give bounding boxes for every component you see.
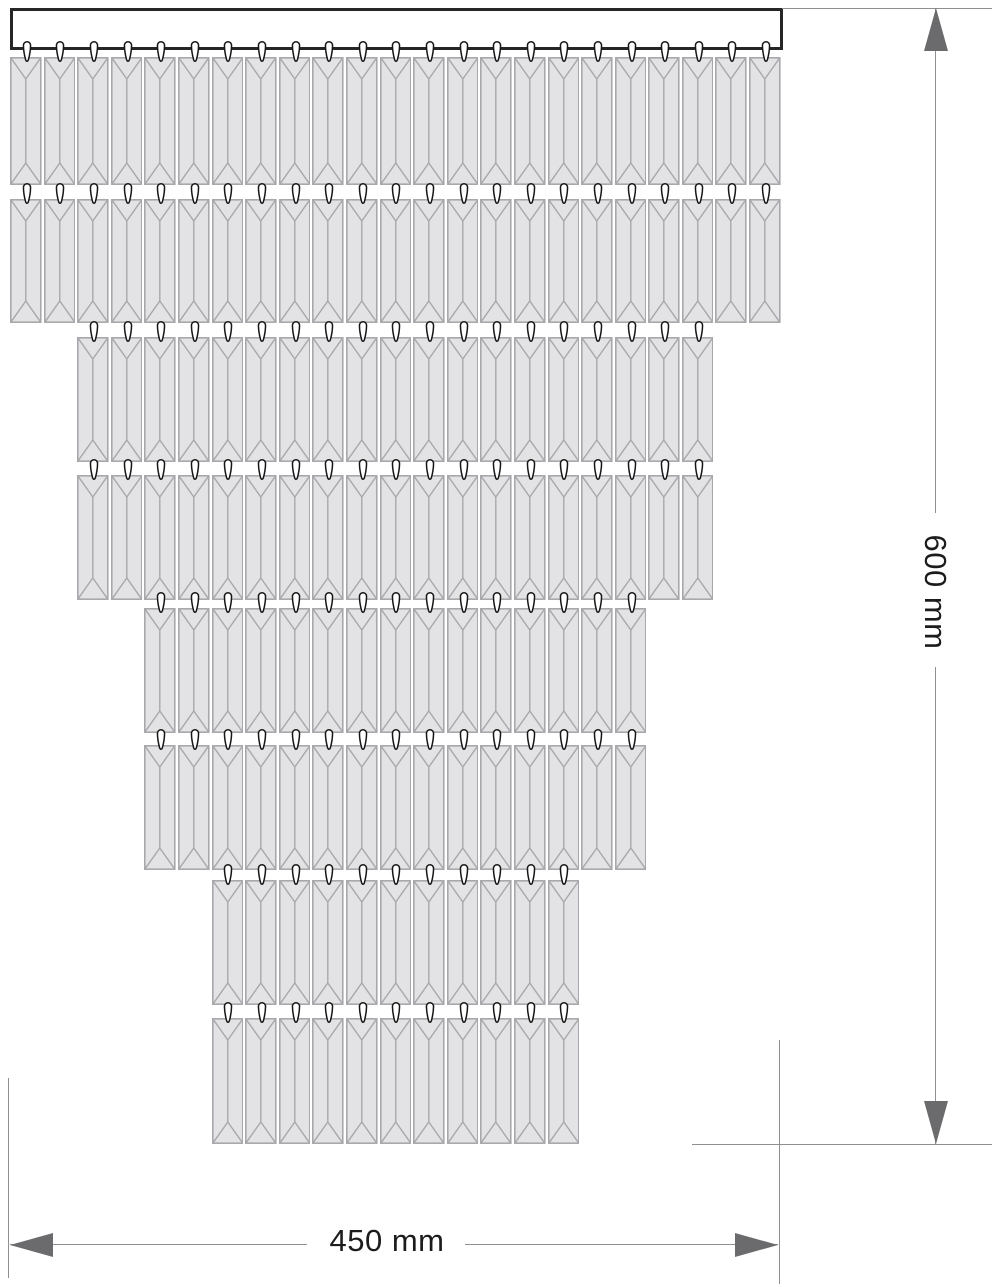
crystal-prism <box>514 475 546 600</box>
crystal-prism <box>581 199 613 323</box>
hook-pin <box>425 459 435 480</box>
crystal-prism <box>447 608 479 733</box>
crystal-prism <box>514 880 546 1005</box>
hook-pin <box>358 183 368 204</box>
crystal-prism <box>581 745 613 870</box>
hook-pin <box>89 459 99 480</box>
crystal-prism <box>212 337 244 462</box>
crystal-prism <box>380 337 412 462</box>
crystal-prism <box>682 199 714 323</box>
technical-drawing-canvas: 600 mm 450 mm <box>0 0 992 1287</box>
crystal-prism <box>279 880 311 1005</box>
crystal-prism <box>111 337 143 462</box>
hook-pin <box>324 41 334 62</box>
hook-pin <box>223 729 233 750</box>
crystal-prism <box>749 199 781 323</box>
hook-pin <box>593 41 603 62</box>
crystal-prism <box>346 199 378 323</box>
hook-pin <box>694 41 704 62</box>
hook-pin <box>459 864 469 885</box>
hook-pin <box>425 592 435 613</box>
hook-pin <box>223 183 233 204</box>
hook-pin <box>291 729 301 750</box>
hook-pin <box>156 729 166 750</box>
crystal-prism <box>346 608 378 733</box>
hook-pin <box>257 41 267 62</box>
crystal-prism <box>682 475 714 600</box>
extension-line-top <box>782 8 992 9</box>
hook-pin <box>291 864 301 885</box>
hook-pin <box>425 729 435 750</box>
hook-pin <box>324 1002 334 1023</box>
hook-pin <box>190 592 200 613</box>
width-dimension-line-right <box>465 1244 778 1245</box>
hook-pin <box>492 592 502 613</box>
crystal-row-row-3 <box>77 337 713 462</box>
crystal-prism <box>212 57 244 185</box>
hook-pin <box>627 321 637 342</box>
crystal-prism <box>346 337 378 462</box>
hook-pin <box>223 459 233 480</box>
hook-pin <box>459 1002 469 1023</box>
hook-pin <box>358 41 368 62</box>
crystal-prism <box>212 745 244 870</box>
crystal-prism <box>615 337 647 462</box>
crystal-prism <box>212 880 244 1005</box>
hook-pin <box>358 592 368 613</box>
hook-pin <box>492 864 502 885</box>
hook-pin <box>123 183 133 204</box>
hook-pin <box>727 183 737 204</box>
crystal-prism <box>548 745 580 870</box>
hook-pin <box>358 1002 368 1023</box>
crystal-prism <box>447 1018 479 1144</box>
hook-pin <box>223 41 233 62</box>
hook-pin <box>358 459 368 480</box>
hook-pin <box>391 321 401 342</box>
hook-pin <box>190 321 200 342</box>
crystal-prism <box>245 745 277 870</box>
crystal-prism <box>548 337 580 462</box>
hook-pin <box>492 183 502 204</box>
hook-pin <box>257 864 267 885</box>
hook-pin <box>694 459 704 480</box>
hook-pin <box>55 41 65 62</box>
crystal-prism <box>648 199 680 323</box>
crystal-prism <box>480 1018 512 1144</box>
crystal-prism <box>77 199 109 323</box>
crystal-prism <box>380 57 412 185</box>
hook-pin <box>324 592 334 613</box>
crystal-prism <box>178 337 210 462</box>
hook-pin <box>291 592 301 613</box>
crystal-prism <box>279 337 311 462</box>
crystal-row-row-4 <box>77 475 713 600</box>
crystal-prism <box>312 608 344 733</box>
crystal-prism <box>346 745 378 870</box>
hook-pin <box>425 321 435 342</box>
crystal-prism <box>413 1018 445 1144</box>
crystal-prism <box>581 57 613 185</box>
hook-pin <box>459 592 469 613</box>
crystal-prism <box>178 199 210 323</box>
crystal-prism <box>581 475 613 600</box>
hook-pin <box>593 729 603 750</box>
hook-pin <box>559 1002 569 1023</box>
crystal-prism <box>178 608 210 733</box>
crystal-prism <box>514 745 546 870</box>
crystal-prism <box>648 337 680 462</box>
extension-line-left <box>8 1078 9 1278</box>
crystal-prism <box>447 880 479 1005</box>
hook-pin <box>358 321 368 342</box>
hook-pin <box>358 864 368 885</box>
crystal-prism <box>245 475 277 600</box>
crystal-prism <box>380 880 412 1005</box>
hook-pin <box>660 41 670 62</box>
crystal-prism <box>312 745 344 870</box>
hook-pin <box>559 321 569 342</box>
hook-pin <box>22 41 32 62</box>
hook-pin <box>156 183 166 204</box>
hook-pin <box>761 41 771 62</box>
hook-pin <box>526 183 536 204</box>
hook-pin <box>358 729 368 750</box>
hook-pin <box>156 459 166 480</box>
crystal-prism <box>514 337 546 462</box>
hook-pin <box>89 321 99 342</box>
crystal-prism <box>514 608 546 733</box>
crystal-prism <box>279 1018 311 1144</box>
hook-pin <box>593 592 603 613</box>
crystal-prism <box>178 57 210 185</box>
crystal-prism <box>10 199 42 323</box>
hook-pin <box>559 183 569 204</box>
hook-pin <box>627 729 637 750</box>
crystal-prism <box>312 475 344 600</box>
crystal-prism <box>380 475 412 600</box>
crystal-prism <box>312 199 344 323</box>
hook-pin <box>391 729 401 750</box>
crystal-prism <box>413 337 445 462</box>
hook-pin <box>190 459 200 480</box>
crystal-prism <box>312 57 344 185</box>
hook-pin <box>223 864 233 885</box>
hook-pin <box>324 729 334 750</box>
crystal-prism <box>312 1018 344 1144</box>
hook-pin <box>291 321 301 342</box>
crystal-prism <box>245 880 277 1005</box>
crystal-prism <box>77 57 109 185</box>
hook-pin <box>492 1002 502 1023</box>
hook-pin <box>156 41 166 62</box>
hook-pin <box>223 1002 233 1023</box>
crystal-prism <box>447 745 479 870</box>
crystal-prism <box>715 199 747 323</box>
crystal-prism <box>212 1018 244 1144</box>
crystal-prism <box>279 57 311 185</box>
arrowhead-down <box>924 1101 948 1144</box>
crystal-prism <box>212 475 244 600</box>
hook-pin <box>526 1002 536 1023</box>
crystal-prism <box>615 608 647 733</box>
crystal-prism <box>144 199 176 323</box>
width-dimension-label: 450 mm <box>330 1223 445 1259</box>
extension-line-bottom <box>692 1144 992 1145</box>
crystal-row-row-8 <box>212 1018 580 1144</box>
crystal-row-row-5 <box>144 608 646 733</box>
hook-pin <box>190 41 200 62</box>
crystal-prism <box>144 745 176 870</box>
crystal-prism <box>10 57 42 185</box>
crystal-prism <box>212 608 244 733</box>
crystal-prism <box>480 57 512 185</box>
height-dimension-line-lower <box>935 667 936 1144</box>
crystal-prism <box>581 608 613 733</box>
crystal-prism <box>178 745 210 870</box>
hook-pin <box>391 41 401 62</box>
crystal-prism <box>346 880 378 1005</box>
crystal-prism <box>279 745 311 870</box>
hook-pin <box>526 459 536 480</box>
hook-pin <box>425 864 435 885</box>
hook-pin <box>694 321 704 342</box>
hook-pin <box>89 41 99 62</box>
crystal-prism <box>447 199 479 323</box>
crystal-prism <box>648 57 680 185</box>
crystal-prism <box>77 337 109 462</box>
crystal-prism <box>648 475 680 600</box>
height-dimension-label: 600 mm <box>917 535 953 650</box>
hook-pin <box>593 459 603 480</box>
crystal-prism <box>548 1018 580 1144</box>
crystal-prism <box>514 199 546 323</box>
hook-pin <box>559 864 569 885</box>
crystal-prism <box>144 57 176 185</box>
crystal-prism <box>380 745 412 870</box>
hook-pin <box>526 729 536 750</box>
crystal-prism <box>514 57 546 185</box>
hook-pin <box>627 41 637 62</box>
hook-pin <box>257 459 267 480</box>
hook-pin <box>425 41 435 62</box>
hook-pin <box>660 183 670 204</box>
hook-pin <box>123 321 133 342</box>
hook-pin <box>324 459 334 480</box>
crystal-prism <box>380 199 412 323</box>
crystal-prism <box>279 475 311 600</box>
hook-pin <box>459 321 469 342</box>
crystal-prism <box>548 199 580 323</box>
crystal-prism <box>548 475 580 600</box>
hook-pin <box>391 459 401 480</box>
hook-pin <box>559 41 569 62</box>
hook-pin <box>156 321 166 342</box>
crystal-prism <box>514 1018 546 1144</box>
arrowhead-up <box>924 8 948 51</box>
hook-pin <box>526 321 536 342</box>
crystal-prism <box>245 608 277 733</box>
hook-pin <box>291 459 301 480</box>
height-dimension-line-upper <box>935 8 936 513</box>
crystal-prism <box>111 57 143 185</box>
hook-pin <box>55 183 65 204</box>
crystal-prism <box>480 745 512 870</box>
crystal-prism <box>245 337 277 462</box>
hook-pin <box>391 1002 401 1023</box>
crystal-prism <box>212 199 244 323</box>
crystal-prism <box>111 475 143 600</box>
hook-pin <box>257 321 267 342</box>
crystal-prism <box>413 608 445 733</box>
hook-pin <box>459 41 469 62</box>
hook-pin <box>593 183 603 204</box>
hook-pin <box>190 183 200 204</box>
hook-pin <box>559 592 569 613</box>
hook-pin <box>425 183 435 204</box>
crystal-prism <box>346 57 378 185</box>
crystal-prism <box>413 880 445 1005</box>
crystal-prism <box>480 337 512 462</box>
crystal-prism <box>144 337 176 462</box>
hook-pin <box>324 183 334 204</box>
crystal-prism <box>480 475 512 600</box>
hook-pin <box>257 1002 267 1023</box>
crystal-prism <box>44 57 76 185</box>
hook-pin <box>291 41 301 62</box>
crystal-prism <box>144 475 176 600</box>
crystal-prism <box>413 57 445 185</box>
width-dimension-line-left <box>10 1244 307 1245</box>
hook-pin <box>627 592 637 613</box>
hook-pin <box>223 592 233 613</box>
crystal-prism <box>44 199 76 323</box>
hook-pin <box>156 592 166 613</box>
crystal-prism <box>144 608 176 733</box>
crystal-row-row-2 <box>10 199 781 323</box>
crystal-prism <box>615 199 647 323</box>
crystal-prism <box>615 475 647 600</box>
hook-pin <box>425 1002 435 1023</box>
hook-pin <box>190 729 200 750</box>
crystal-prism <box>749 57 781 185</box>
hook-pin <box>391 592 401 613</box>
crystal-prism <box>312 880 344 1005</box>
crystal-prism <box>548 57 580 185</box>
hook-pin <box>459 459 469 480</box>
crystal-prism <box>380 1018 412 1144</box>
hook-pin <box>391 183 401 204</box>
hook-pin <box>492 321 502 342</box>
hook-pin <box>761 183 771 204</box>
hook-pin <box>223 321 233 342</box>
hook-pin <box>324 864 334 885</box>
arrowhead-right <box>735 1233 778 1257</box>
crystal-prism <box>245 57 277 185</box>
hook-pin <box>257 592 267 613</box>
hook-pin <box>526 592 536 613</box>
crystal-prism <box>77 475 109 600</box>
crystal-prism <box>346 1018 378 1144</box>
crystal-prism <box>178 475 210 600</box>
crystal-prism <box>111 199 143 323</box>
crystal-prism <box>245 1018 277 1144</box>
crystal-prism <box>346 475 378 600</box>
hook-pin <box>593 321 603 342</box>
crystal-row-row-7 <box>212 880 580 1005</box>
hook-pin <box>492 41 502 62</box>
crystal-prism <box>581 337 613 462</box>
crystal-prism <box>548 608 580 733</box>
crystal-prism <box>480 199 512 323</box>
hook-pin <box>492 729 502 750</box>
hook-pin <box>324 321 334 342</box>
crystal-prism <box>413 475 445 600</box>
crystal-prism <box>413 199 445 323</box>
hook-pin <box>727 41 737 62</box>
hook-pin <box>291 183 301 204</box>
hook-pin <box>291 1002 301 1023</box>
crystal-prism <box>447 475 479 600</box>
crystal-prism <box>312 337 344 462</box>
crystal-prism <box>380 608 412 733</box>
crystal-prism <box>279 199 311 323</box>
arrowhead-left <box>10 1233 53 1257</box>
hook-pin <box>526 41 536 62</box>
crystal-prism <box>682 337 714 462</box>
crystal-prism <box>480 880 512 1005</box>
crystal-prism <box>447 57 479 185</box>
hook-pin <box>391 864 401 885</box>
hook-pin <box>526 864 536 885</box>
hook-pin <box>627 459 637 480</box>
crystal-prism <box>413 745 445 870</box>
hook-pin <box>459 729 469 750</box>
hook-pin <box>123 41 133 62</box>
crystal-row-row-6 <box>144 745 646 870</box>
crystal-prism <box>615 57 647 185</box>
crystal-prism <box>447 337 479 462</box>
crystal-prism <box>715 57 747 185</box>
hook-pin <box>660 321 670 342</box>
hook-pin <box>559 729 569 750</box>
crystal-prism <box>245 199 277 323</box>
crystal-prism <box>548 880 580 1005</box>
crystal-row-row-1 <box>10 57 781 185</box>
hook-pin <box>660 459 670 480</box>
crystal-prism <box>615 745 647 870</box>
hook-pin <box>257 729 267 750</box>
hook-pin <box>459 183 469 204</box>
hook-pin <box>492 459 502 480</box>
crystal-prism <box>682 57 714 185</box>
hook-pin <box>559 459 569 480</box>
hook-pin <box>627 183 637 204</box>
hook-pin <box>123 459 133 480</box>
hook-pin <box>22 183 32 204</box>
hook-pin <box>89 183 99 204</box>
crystal-prism <box>480 608 512 733</box>
hook-pin <box>257 183 267 204</box>
crystal-prism <box>279 608 311 733</box>
hook-pin <box>694 183 704 204</box>
extension-line-right <box>779 1040 780 1284</box>
